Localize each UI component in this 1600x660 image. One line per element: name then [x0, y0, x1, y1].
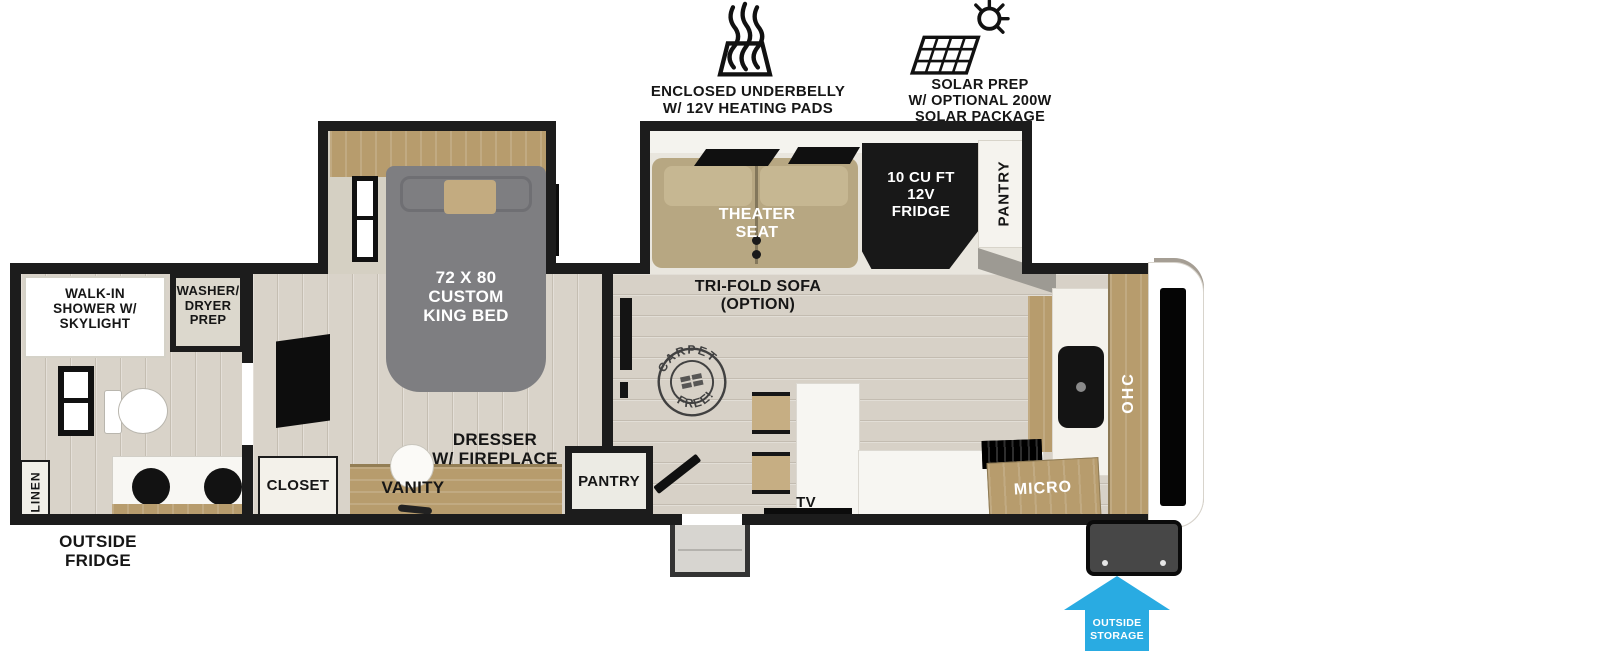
- outside-storage-door: [1086, 520, 1182, 576]
- carpet-free-stamp: CARPET FREE!: [640, 330, 744, 434]
- toilet-bowl: [118, 388, 168, 434]
- storage-door-screw-left: [1102, 560, 1108, 566]
- fireplace-wall-slab: [620, 298, 632, 370]
- stamp-plank-glyph: [680, 373, 703, 389]
- wall-top-rear: [10, 263, 328, 274]
- outside-storage-arrow-body: OUTSIDE STORAGE: [1085, 609, 1149, 651]
- underbelly-label: ENCLOSED UNDERBELLY W/ 12V HEATING PADS: [648, 84, 848, 118]
- wall-top-front: [1022, 263, 1152, 274]
- entry-steps: [670, 525, 750, 577]
- king-bed-label: 72 X 80 CUSTOM KING BED: [396, 268, 536, 325]
- walk-in-shower-label: WALK-IN SHOWER W/ SKYLIGHT: [30, 286, 160, 331]
- closet-label: CLOSET: [258, 478, 338, 495]
- bath-counter-ledge: [112, 504, 242, 514]
- storage-door-screw-right: [1160, 560, 1166, 566]
- bar-stool-1: [752, 392, 790, 434]
- front-cap-window: [1160, 288, 1186, 506]
- washer-dryer-label: WASHER/ DRYER PREP: [170, 284, 246, 328]
- outside-fridge-label: OUTSIDE FRIDGE: [28, 532, 168, 570]
- overhead-cabinet-label-wrap: OHC: [1108, 266, 1150, 520]
- vanity-label: VANITY: [348, 478, 478, 497]
- rv-floorplan-diagram: ENCLOSED UNDERBELLY W/ 12V HEATING PADS …: [0, 0, 1600, 660]
- heating-pad-icon: [702, 0, 788, 80]
- bathroom-window-divider: [60, 398, 92, 403]
- wall-bathroom-divider-upper: [242, 263, 253, 363]
- wall-bottom-rear: [10, 514, 682, 525]
- wall-rear-end: [10, 263, 21, 525]
- kitchen-cabinet-run: [1028, 296, 1052, 452]
- tv-label: TV: [776, 495, 836, 512]
- stamp-top-text: CARPET: [651, 336, 722, 376]
- linen-label: LINEN: [28, 472, 42, 513]
- bath-sink-right: [204, 468, 242, 506]
- bedroom-tv-icon: [276, 334, 330, 428]
- bath-sink-left: [132, 468, 170, 506]
- wall-bedroom-living-divider: [602, 263, 613, 448]
- entry-steps-tread-line: [678, 549, 742, 551]
- kitchen-sink-drain: [1076, 382, 1086, 392]
- bar-stool-2: [752, 452, 790, 494]
- outside-storage-label: OUTSIDE STORAGE: [1090, 617, 1144, 643]
- wall-bathroom-divider-lower: [242, 445, 253, 525]
- solar-label: SOLAR PREP W/ OPTIONAL 200W SOLAR PACKAG…: [866, 77, 1094, 126]
- svg-text:CARPET: CARPET: [651, 336, 722, 376]
- living-slideout-frame: [640, 121, 1032, 274]
- overhead-cabinet-label: OHC: [1120, 372, 1138, 414]
- fireplace-wall-slab-small: [620, 382, 628, 398]
- outside-storage-arrow-head: [1064, 576, 1170, 610]
- bedroom-slideout-frame: [318, 121, 556, 274]
- solar-panel-icon: [904, 0, 1012, 78]
- bedroom-pantry-label: PANTRY: [565, 474, 653, 491]
- trifold-sofa-label: TRI-FOLD SOFA (OPTION): [682, 278, 834, 314]
- dresser-fireplace-label: DRESSER W/ FIREPLACE: [420, 430, 570, 468]
